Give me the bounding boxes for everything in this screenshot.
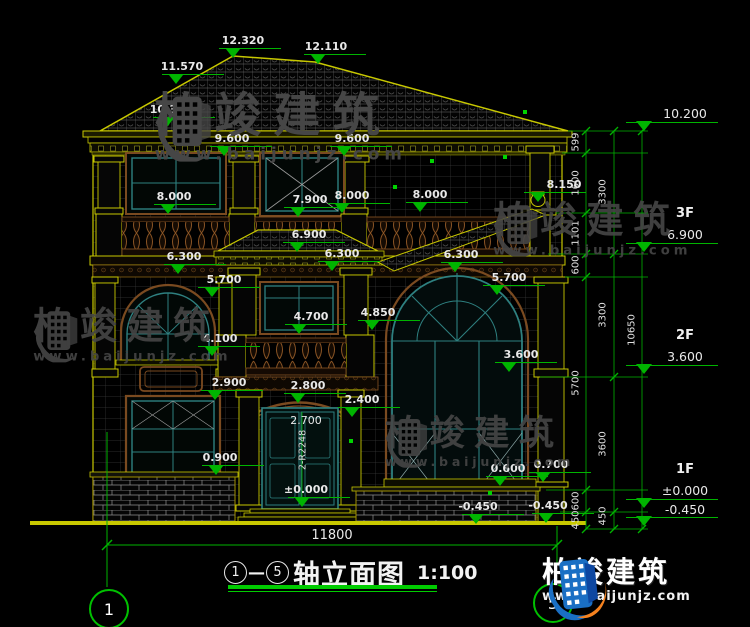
elevation-triangle-icon xyxy=(161,205,175,214)
door-arch-radius-dim: 2-R2248 xyxy=(298,418,309,482)
elevation-triangle-icon xyxy=(311,55,325,64)
title-scale: 1:100 xyxy=(417,562,477,584)
elevation-value: 2.400 xyxy=(330,394,394,406)
watermark-logo-icon xyxy=(380,414,434,468)
elevation-triangle-icon xyxy=(502,363,516,372)
title-underline-thick xyxy=(228,585,437,589)
chain-dimension-label: 3300 xyxy=(598,280,609,350)
elevation-value: 4.700 xyxy=(279,311,343,323)
elevation-value: 8.000 xyxy=(398,189,462,201)
title-underline-thin xyxy=(228,591,437,592)
elevation-value: 0.900 xyxy=(188,452,252,464)
elevation-value: 6.900 xyxy=(277,229,341,241)
brick-base-left xyxy=(93,477,235,522)
elevation-triangle-icon xyxy=(345,408,359,417)
floor-marker-triangle-icon xyxy=(636,516,652,526)
elevation-triangle-icon xyxy=(291,394,305,403)
elevation-value: 8.150 xyxy=(532,179,596,191)
elevation-triangle-icon xyxy=(290,243,304,252)
first-floor-left-window xyxy=(126,396,220,479)
elevation-value: 12.320 xyxy=(211,35,275,47)
elevation-value: 2.800 xyxy=(276,380,340,392)
elevation-triangle-icon xyxy=(208,391,222,400)
elevation-value: 4.850 xyxy=(346,307,410,319)
elevation-triangle-icon xyxy=(335,204,349,213)
elevation-triangle-icon xyxy=(169,75,183,84)
elevation-value: 6.300 xyxy=(310,248,374,260)
chain-dimension-label: 450 xyxy=(571,485,582,555)
ground-line xyxy=(30,521,586,525)
elevation-triangle-icon xyxy=(325,262,339,271)
elevation-value: -0.450 xyxy=(446,501,510,513)
watermark-logo-icon xyxy=(28,306,84,362)
title-dash: — xyxy=(248,563,265,583)
elevation-triangle-icon xyxy=(448,263,462,272)
total-width-dim: 11800 xyxy=(272,528,392,543)
watermark-logo-icon xyxy=(148,90,220,162)
watermark: 柏竣建筑www.baijunjz.com xyxy=(380,414,574,469)
elevation-triangle-icon xyxy=(493,477,507,486)
watermark: 柏竣建筑www.baijunjz.com xyxy=(28,306,231,364)
elevation-triangle-icon xyxy=(490,286,504,295)
elevation-triangle-icon xyxy=(295,498,309,507)
elevation-value: 8.000 xyxy=(142,191,206,203)
floor-elevation-value: ±0.000 xyxy=(648,483,722,498)
floor-marker-triangle-icon xyxy=(636,364,652,374)
cad-elevation-screenshot: 12.32012.11011.57010.3509.6009.6008.0007… xyxy=(0,0,750,627)
floor-elevation-value: 10.200 xyxy=(648,106,722,121)
brand-logo-icon xyxy=(538,555,610,623)
floor-elevation-value: -0.450 xyxy=(648,502,722,517)
brand-logo: 柏竣建筑 www.baijunjz.com xyxy=(538,555,691,604)
chain-dimension-label: 5700 xyxy=(571,348,582,418)
chain-dimension-label: 10650 xyxy=(627,295,638,365)
elevation-value: 2.900 xyxy=(197,377,261,389)
floor-label: 1F xyxy=(655,462,715,477)
title-axis-to: 5 xyxy=(266,561,289,584)
elevation-triangle-icon xyxy=(539,514,553,523)
elevation-value: 12.110 xyxy=(294,41,358,53)
elevation-triangle-icon xyxy=(291,208,305,217)
axis-bubble-1: 1 xyxy=(89,589,129,627)
elevation-value: 6.300 xyxy=(429,249,493,261)
elevation-value: 6.300 xyxy=(152,251,216,263)
elevation-triangle-icon xyxy=(469,515,483,524)
elevation-value: 8.000 xyxy=(320,190,384,202)
elevation-value: 3.600 xyxy=(489,349,553,361)
watermark: 柏竣建筑www.baijunjz.com xyxy=(488,200,691,258)
elevation-triangle-icon xyxy=(171,265,185,274)
watermark: 柏竣建筑www.baijunjz.com xyxy=(148,90,407,164)
watermark-logo-icon xyxy=(488,200,544,256)
elevation-triangle-icon xyxy=(292,325,306,334)
floor-label: 2F xyxy=(655,328,715,343)
chain-dimension-label: 3600 xyxy=(598,409,609,479)
elevation-value: ±0.000 xyxy=(274,484,338,496)
elevation-triangle-icon xyxy=(413,203,427,212)
elevation-triangle-icon xyxy=(205,288,219,297)
chain-dimension-label: 450 xyxy=(598,481,609,551)
elevation-value: 5.700 xyxy=(477,272,541,284)
floor-elevation-value: 3.600 xyxy=(648,349,722,364)
elevation-value: 5.700 xyxy=(192,274,256,286)
floor-marker-triangle-icon xyxy=(636,121,652,131)
elevation-triangle-icon xyxy=(209,466,223,475)
elevation-value: 11.570 xyxy=(150,61,214,73)
elevation-triangle-icon xyxy=(365,321,379,330)
elevation-triangle-icon xyxy=(536,473,550,482)
elevation-triangle-icon xyxy=(226,49,240,58)
title-axis-from: 1 xyxy=(224,561,247,584)
